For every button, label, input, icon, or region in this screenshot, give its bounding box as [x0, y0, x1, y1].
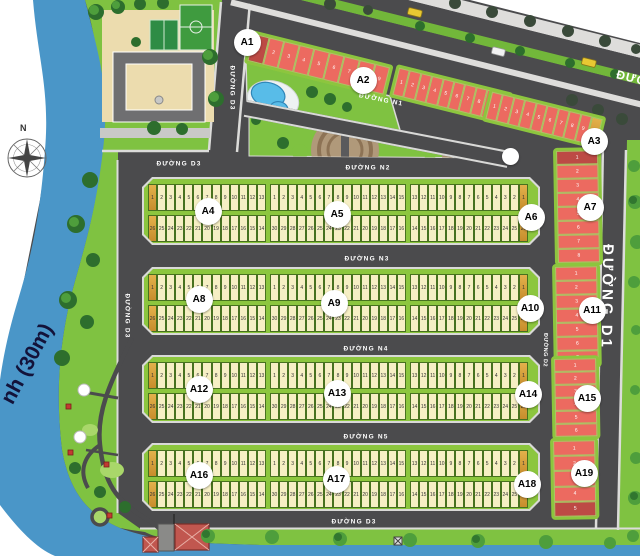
plot[interactable]: 16 [428, 215, 437, 242]
plot[interactable]: 11 [239, 274, 248, 301]
plot[interactable]: 9 [221, 184, 230, 211]
plot[interactable]: 17 [437, 215, 446, 242]
plot[interactable]: 1 [554, 358, 596, 372]
plot[interactable]: 12 [419, 362, 428, 389]
plot[interactable]: 22 [184, 215, 193, 242]
plot[interactable]: 14 [257, 305, 266, 332]
plot[interactable]: 17 [437, 305, 446, 332]
plot[interactable]: 2 [510, 450, 519, 477]
plot[interactable]: 2 [556, 164, 598, 179]
plot[interactable]: 15 [248, 481, 257, 508]
plot[interactable]: 4 [492, 184, 501, 211]
plot[interactable]: 3 [288, 450, 297, 477]
plot[interactable]: 28 [288, 305, 297, 332]
plot[interactable]: 22 [483, 305, 492, 332]
plot[interactable]: 29 [279, 215, 288, 242]
plot[interactable]: 18 [379, 393, 388, 420]
plot[interactable]: 15 [248, 215, 257, 242]
plot[interactable]: 4 [492, 450, 501, 477]
plot[interactable]: 15 [397, 362, 406, 389]
plot[interactable]: 15 [397, 274, 406, 301]
plot[interactable]: 6 [315, 362, 324, 389]
plot[interactable]: 23 [492, 481, 501, 508]
street-label-d3-top: ĐƯỜNG D3 [229, 65, 236, 110]
plot[interactable]: 18 [446, 481, 455, 508]
plot[interactable]: 19 [370, 215, 379, 242]
plot[interactable]: 7 [464, 274, 473, 301]
plot[interactable]: 13 [410, 274, 419, 301]
plot[interactable]: 13 [379, 274, 388, 301]
block-label-A5: A5 [324, 201, 351, 228]
plot[interactable]: 8 [558, 248, 600, 263]
plot[interactable]: 12 [419, 450, 428, 477]
plot[interactable]: 28 [288, 215, 297, 242]
plot[interactable]: 3 [288, 184, 297, 211]
plot[interactable]: 12 [248, 274, 257, 301]
plot[interactable]: 17 [388, 215, 397, 242]
plot[interactable]: 2 [279, 362, 288, 389]
plot[interactable]: 18 [379, 481, 388, 508]
plot[interactable]: 21 [474, 305, 483, 332]
plot[interactable]: 14 [257, 481, 266, 508]
plot[interactable]: 1 [148, 274, 157, 301]
plot[interactable]: 20 [361, 305, 370, 332]
plot[interactable]: 6 [555, 423, 597, 437]
plot[interactable]: 9 [446, 450, 455, 477]
plot[interactable]: 4 [297, 274, 306, 301]
plot[interactable]: 8 [455, 274, 464, 301]
plot[interactable]: 10 [437, 274, 446, 301]
plot[interactable]: 26 [306, 481, 315, 508]
plot[interactable]: 2 [510, 274, 519, 301]
plot[interactable]: 20 [464, 393, 473, 420]
block-label-A1: A1 [234, 29, 261, 56]
plot[interactable]: 11 [428, 274, 437, 301]
plot[interactable]: 24 [501, 305, 510, 332]
block-label-A15: A15 [574, 385, 601, 412]
plot[interactable]: 25 [157, 393, 166, 420]
plot[interactable]: 18 [446, 305, 455, 332]
plot[interactable]: 6 [315, 450, 324, 477]
plot[interactable]: 6 [474, 184, 483, 211]
plot[interactable]: 5 [483, 274, 492, 301]
plot[interactable]: 16 [397, 215, 406, 242]
plot[interactable]: 14 [410, 215, 419, 242]
block-label-A16: A16 [186, 462, 213, 489]
plot[interactable]: 14 [388, 184, 397, 211]
plot[interactable]: 23 [175, 481, 184, 508]
plot[interactable]: 1 [270, 362, 279, 389]
plot[interactable]: 25 [157, 215, 166, 242]
plot[interactable]: 24 [166, 305, 175, 332]
compass-icon [8, 139, 46, 177]
plot[interactable]: 17 [388, 305, 397, 332]
plot[interactable]: 20 [361, 215, 370, 242]
block-label-A10: A10 [517, 295, 544, 322]
plot[interactable]: 5 [306, 362, 315, 389]
plot[interactable]: 2 [157, 362, 166, 389]
plot[interactable]: 10 [352, 274, 361, 301]
plot[interactable]: 24 [501, 215, 510, 242]
plot[interactable]: 10 [230, 184, 239, 211]
plot[interactable]: 12 [419, 274, 428, 301]
plot[interactable]: 8 [212, 274, 221, 301]
plot[interactable]: 10 [352, 184, 361, 211]
plot[interactable]: 9 [446, 184, 455, 211]
plot[interactable]: 18 [446, 393, 455, 420]
plot[interactable]: 23 [175, 305, 184, 332]
plot[interactable]: 5 [554, 501, 596, 517]
plot[interactable]: 20 [464, 481, 473, 508]
plot[interactable]: 25 [315, 481, 324, 508]
plot[interactable]: 2 [279, 450, 288, 477]
plot[interactable]: 6 [474, 274, 483, 301]
plot[interactable]: 13 [410, 362, 419, 389]
plot[interactable]: 30 [270, 305, 279, 332]
plot[interactable]: 28 [288, 393, 297, 420]
plot[interactable]: 13 [257, 274, 266, 301]
plot[interactable]: 6 [474, 450, 483, 477]
plot[interactable]: 4 [492, 362, 501, 389]
plot[interactable]: 5 [483, 184, 492, 211]
plot[interactable]: 26 [306, 305, 315, 332]
plot[interactable]: 18 [221, 305, 230, 332]
plot[interactable]: 11 [361, 184, 370, 211]
plot[interactable]: 17 [230, 305, 239, 332]
plot[interactable]: 16 [397, 481, 406, 508]
plot[interactable]: 10 [352, 362, 361, 389]
plot[interactable]: 5 [306, 184, 315, 211]
plot[interactable]: 12 [370, 362, 379, 389]
plot[interactable]: 30 [270, 481, 279, 508]
plot[interactable]: 7 [464, 362, 473, 389]
plot[interactable]: 9 [221, 362, 230, 389]
plot[interactable]: 21 [352, 393, 361, 420]
plot[interactable]: 2 [510, 184, 519, 211]
plot[interactable]: 1 [148, 362, 157, 389]
plot[interactable]: 26 [148, 481, 157, 508]
plot[interactable]: 19 [455, 305, 464, 332]
plot[interactable]: 19 [370, 481, 379, 508]
block-label-A4: A4 [195, 198, 222, 225]
plot[interactable]: 16 [239, 305, 248, 332]
plot[interactable]: 4 [297, 362, 306, 389]
plot[interactable]: 19 [212, 481, 221, 508]
plot-row: 13121110987654321 [410, 362, 528, 389]
plot[interactable]: 14 [388, 274, 397, 301]
block-label-A7: A7 [577, 194, 604, 221]
plot[interactable]: 11 [361, 450, 370, 477]
plot[interactable]: 14 [388, 450, 397, 477]
plot[interactable]: 16 [428, 481, 437, 508]
plot[interactable]: 10 [437, 184, 446, 211]
plot[interactable]: 10 [437, 362, 446, 389]
block-label-A6: A6 [518, 204, 545, 231]
plot[interactable]: 25 [315, 215, 324, 242]
plot[interactable]: 14 [257, 393, 266, 420]
plot[interactable]: 27 [297, 215, 306, 242]
plot[interactable]: 11 [361, 274, 370, 301]
plot[interactable]: 13 [379, 450, 388, 477]
plot[interactable]: 9 [446, 362, 455, 389]
plot[interactable]: 13 [410, 184, 419, 211]
plot[interactable]: 25 [157, 481, 166, 508]
plot[interactable]: 11 [428, 362, 437, 389]
plot[interactable]: 23 [492, 305, 501, 332]
plot[interactable]: 3 [288, 274, 297, 301]
block-label-A18: A18 [514, 471, 541, 498]
plot[interactable]: 20 [464, 215, 473, 242]
plot[interactable]: 24 [166, 393, 175, 420]
plot[interactable]: 25 [157, 305, 166, 332]
plot[interactable]: 9 [221, 274, 230, 301]
plot[interactable]: 4 [297, 184, 306, 211]
plot[interactable]: 3 [501, 362, 510, 389]
plot[interactable]: 1 [270, 274, 279, 301]
plot[interactable]: 17 [388, 481, 397, 508]
plot[interactable]: 16 [397, 305, 406, 332]
plot[interactable]: 11 [428, 184, 437, 211]
plot[interactable]: 21 [352, 481, 361, 508]
plot[interactable]: 30 [270, 215, 279, 242]
plot[interactable]: 11 [428, 450, 437, 477]
plot[interactable]: 15 [397, 450, 406, 477]
plot[interactable]: 7 [558, 234, 600, 249]
plot[interactable]: 27 [297, 393, 306, 420]
plot[interactable]: 16 [239, 393, 248, 420]
plot[interactable]: 26 [148, 305, 157, 332]
plot[interactable]: 1 [555, 266, 597, 281]
block-A18: 1312111098765432114151617181920212223242… [410, 450, 528, 508]
plot[interactable]: 15 [397, 184, 406, 211]
plot[interactable]: 30 [270, 393, 279, 420]
plot[interactable]: 1 [270, 450, 279, 477]
plot[interactable]: 6 [315, 184, 324, 211]
plot[interactable]: 3 [501, 184, 510, 211]
plot[interactable]: 1 [148, 184, 157, 211]
plot[interactable]: 5 [184, 184, 193, 211]
plot[interactable]: 21 [474, 215, 483, 242]
plot[interactable]: 17 [437, 393, 446, 420]
plot[interactable]: 13 [410, 450, 419, 477]
plot[interactable]: 8 [212, 450, 221, 477]
plot[interactable]: 2 [279, 184, 288, 211]
plot[interactable]: 17 [230, 393, 239, 420]
plot[interactable]: 3 [166, 274, 175, 301]
plot[interactable]: 9 [446, 274, 455, 301]
plot[interactable]: 22 [483, 481, 492, 508]
plot[interactable]: 21 [352, 305, 361, 332]
plot[interactable]: 14 [257, 215, 266, 242]
plot[interactable]: 17 [230, 215, 239, 242]
plot[interactable]: 5 [483, 362, 492, 389]
plot[interactable]: 23 [175, 393, 184, 420]
plot[interactable]: 5 [306, 450, 315, 477]
plot[interactable]: 15 [419, 215, 428, 242]
plot[interactable]: 2 [279, 274, 288, 301]
plot[interactable]: 14 [410, 393, 419, 420]
plot[interactable]: 3 [501, 274, 510, 301]
plot[interactable]: 6 [557, 220, 599, 235]
plot[interactable]: 2 [157, 184, 166, 211]
plot-row: 14151617181920212223242526 [410, 393, 528, 420]
plot[interactable]: 4 [297, 450, 306, 477]
plot[interactable]: 29 [279, 305, 288, 332]
plot[interactable]: 15 [419, 481, 428, 508]
plot[interactable]: 20 [464, 305, 473, 332]
plot[interactable]: 29 [279, 481, 288, 508]
plot[interactable]: 13 [379, 362, 388, 389]
plot[interactable]: 1 [270, 184, 279, 211]
plot[interactable]: 18 [221, 481, 230, 508]
plot[interactable]: 2 [157, 450, 166, 477]
plot[interactable]: 10 [437, 450, 446, 477]
plot[interactable]: 15 [248, 393, 257, 420]
plot[interactable]: 20 [361, 481, 370, 508]
plot[interactable]: 7 [464, 450, 473, 477]
plot[interactable]: 3 [288, 362, 297, 389]
plot[interactable]: 6 [474, 362, 483, 389]
plot[interactable]: 19 [455, 215, 464, 242]
plot-row: 14151617181920212223242526 [410, 215, 528, 242]
plot[interactable]: 20 [361, 393, 370, 420]
plot[interactable]: 26 [148, 393, 157, 420]
plot[interactable]: 3 [166, 450, 175, 477]
plot[interactable]: 11 [239, 184, 248, 211]
plot[interactable]: 12 [419, 184, 428, 211]
plot[interactable]: 26 [306, 393, 315, 420]
plot[interactable]: 11 [361, 362, 370, 389]
plot[interactable]: 11 [239, 362, 248, 389]
plot[interactable]: 12 [248, 362, 257, 389]
plot[interactable]: 5 [306, 274, 315, 301]
plot[interactable]: 18 [446, 215, 455, 242]
plot[interactable]: 12 [370, 184, 379, 211]
plot[interactable]: 15 [419, 305, 428, 332]
plot[interactable]: 17 [230, 481, 239, 508]
plot[interactable]: 12 [248, 450, 257, 477]
plot[interactable]: 21 [474, 481, 483, 508]
plot[interactable]: 17 [437, 481, 446, 508]
plot[interactable]: 3 [166, 184, 175, 211]
plot[interactable]: 12 [248, 184, 257, 211]
plot[interactable]: 5 [483, 450, 492, 477]
plot[interactable]: 3 [557, 178, 599, 193]
plot[interactable]: 16 [397, 393, 406, 420]
plot[interactable]: 18 [379, 215, 388, 242]
plot[interactable]: 16 [428, 393, 437, 420]
plot[interactable]: 23 [492, 393, 501, 420]
plot[interactable]: 8 [212, 362, 221, 389]
plot[interactable]: 19 [370, 305, 379, 332]
plot[interactable]: 5 [555, 410, 597, 424]
plot[interactable]: 13 [257, 362, 266, 389]
plot[interactable]: 19 [455, 393, 464, 420]
plot[interactable]: 2 [555, 280, 597, 295]
plot[interactable]: 16 [428, 305, 437, 332]
plot[interactable]: 14 [410, 481, 419, 508]
plot[interactable]: 28 [288, 481, 297, 508]
plot[interactable]: 25 [315, 393, 324, 420]
plot[interactable]: 1 [148, 450, 157, 477]
plot[interactable]: 27 [297, 481, 306, 508]
plot[interactable]: 4 [554, 486, 596, 502]
plot[interactable]: 2 [157, 274, 166, 301]
plot[interactable]: 10 [230, 450, 239, 477]
plot[interactable]: 6 [556, 336, 598, 351]
plot[interactable]: 26 [148, 215, 157, 242]
plot[interactable]: 3 [501, 450, 510, 477]
plot[interactable]: 24 [166, 215, 175, 242]
plot[interactable]: 23 [175, 215, 184, 242]
plot[interactable]: 19 [212, 305, 221, 332]
plot[interactable]: 19 [370, 393, 379, 420]
block-label-A2: A2 [350, 67, 377, 94]
plot[interactable]: 24 [501, 481, 510, 508]
plot[interactable]: 2 [554, 371, 596, 385]
plot[interactable]: 4 [175, 362, 184, 389]
plot[interactable]: 4 [175, 274, 184, 301]
plot[interactable]: 5 [556, 322, 598, 337]
plot[interactable]: 19 [212, 393, 221, 420]
plot[interactable]: 19 [455, 481, 464, 508]
plot[interactable]: 10 [230, 362, 239, 389]
plot[interactable]: 7 [464, 184, 473, 211]
plot[interactable]: 9 [221, 450, 230, 477]
plot[interactable]: 8 [455, 184, 464, 211]
plot[interactable]: 15 [419, 393, 428, 420]
plot[interactable]: 17 [388, 393, 397, 420]
plot[interactable]: 8 [455, 362, 464, 389]
plot[interactable]: 3 [166, 362, 175, 389]
plot[interactable]: 18 [221, 215, 230, 242]
plot[interactable]: 11 [239, 450, 248, 477]
plot[interactable]: 18 [379, 305, 388, 332]
plot[interactable]: 4 [492, 274, 501, 301]
plot[interactable]: 29 [279, 393, 288, 420]
plot[interactable]: 16 [239, 481, 248, 508]
plot[interactable]: 12 [370, 274, 379, 301]
plot[interactable]: 4 [175, 450, 184, 477]
block-label-A19: A19 [571, 460, 598, 487]
plot[interactable]: 24 [501, 393, 510, 420]
plot[interactable]: 21 [352, 215, 361, 242]
plot[interactable]: 14 [388, 362, 397, 389]
plot[interactable]: 12 [370, 450, 379, 477]
plot[interactable]: 4 [175, 184, 184, 211]
plot[interactable]: 21 [474, 393, 483, 420]
plot[interactable]: 27 [297, 305, 306, 332]
plot[interactable]: 13 [379, 184, 388, 211]
plot[interactable]: 16 [239, 215, 248, 242]
plot[interactable]: 1 [553, 440, 595, 456]
plot[interactable]: 13 [257, 450, 266, 477]
plot[interactable]: 24 [166, 481, 175, 508]
street-label-d3-left: ĐƯỜNG D3 [124, 293, 131, 338]
street-label-n3: ĐƯỜNG N3 [344, 256, 389, 263]
plot[interactable]: 15 [248, 305, 257, 332]
plot[interactable]: 10 [352, 450, 361, 477]
plot[interactable]: 23 [492, 215, 501, 242]
plot[interactable]: 10 [230, 274, 239, 301]
plot[interactable]: 8 [455, 450, 464, 477]
plot[interactable]: 18 [221, 393, 230, 420]
plot[interactable]: 22 [483, 393, 492, 420]
plot[interactable]: 13 [257, 184, 266, 211]
plot[interactable]: 22 [483, 215, 492, 242]
plot[interactable]: 14 [410, 305, 419, 332]
plot[interactable]: 26 [306, 215, 315, 242]
